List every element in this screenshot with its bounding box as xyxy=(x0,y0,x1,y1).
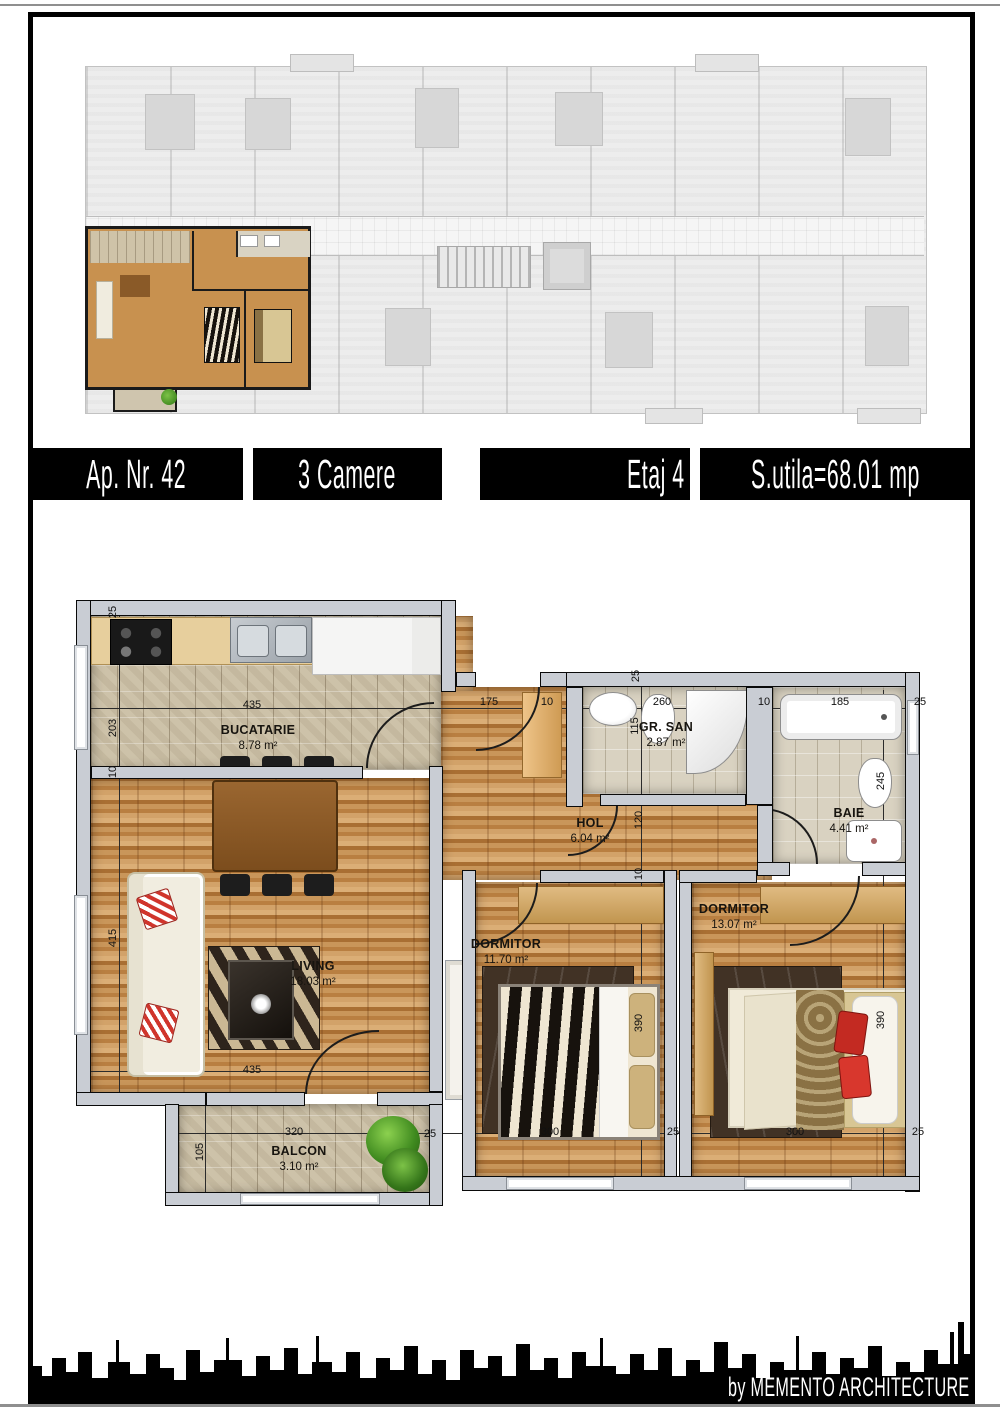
dimension-label: 25 xyxy=(424,1128,436,1140)
elevator xyxy=(543,242,591,290)
wall xyxy=(679,870,757,883)
credit-text: by MEMENTO ARCHITECTURE xyxy=(728,1372,970,1403)
room-count: 3 Camere xyxy=(299,451,397,498)
dimension-label: 390 xyxy=(875,1011,887,1029)
room-label-living: LIVING18.03 m² xyxy=(290,959,335,989)
mini-sofa xyxy=(96,281,113,339)
dimension-label: 260 xyxy=(653,696,671,708)
dining-table xyxy=(212,780,338,872)
mini-dining-table xyxy=(120,275,150,297)
window xyxy=(74,645,88,750)
room-hint xyxy=(605,312,653,368)
dimension-label: 203 xyxy=(107,719,119,737)
room-hint xyxy=(415,88,459,148)
window xyxy=(907,700,919,755)
wall xyxy=(429,1104,443,1206)
mini-fixture xyxy=(264,235,280,247)
room-hint xyxy=(845,98,891,156)
dimension-label: 10 xyxy=(758,696,770,708)
dimension-label: 25 xyxy=(914,696,926,708)
dimension-label: 245 xyxy=(875,772,887,790)
mini-bed-zebra xyxy=(204,307,240,363)
room-hint xyxy=(245,98,291,150)
wall xyxy=(76,600,456,616)
pillow xyxy=(833,1010,869,1056)
mini-bed-beige xyxy=(254,309,292,363)
dimension-label: 435 xyxy=(243,1064,261,1076)
chair xyxy=(262,874,292,896)
room-label-bucatarie: BUCATARIE8.78 m² xyxy=(221,723,295,753)
highlighted-apartment[interactable] xyxy=(85,226,311,390)
dimension-label: 105 xyxy=(194,1143,206,1161)
top-rule xyxy=(0,4,1000,6)
window xyxy=(744,1177,852,1190)
room-hint xyxy=(865,306,909,366)
mini-wall xyxy=(192,289,308,291)
window xyxy=(240,1193,380,1205)
balcony-bump xyxy=(290,54,354,72)
dimension-label: 25 xyxy=(630,670,642,682)
dimension-label: 120 xyxy=(633,811,645,829)
dimension-label: 320 xyxy=(285,1126,303,1138)
dormitor-2-wardrobe xyxy=(694,952,714,1116)
wall xyxy=(664,870,677,1190)
room-count-box: 3 Camere xyxy=(253,448,442,500)
coffee-table xyxy=(228,960,294,1040)
window xyxy=(506,1177,614,1190)
room-hint xyxy=(145,94,195,150)
kitchen-cabinet xyxy=(312,617,441,675)
apartment-number-box: Ap. Nr. 42 xyxy=(30,448,243,500)
dimension-label: 300 xyxy=(541,1126,559,1138)
chair xyxy=(304,874,334,896)
staircase xyxy=(437,246,531,288)
mini-wall xyxy=(244,289,246,387)
wall xyxy=(165,1104,179,1206)
dimension-label: 25 xyxy=(667,1126,679,1138)
room-label-dormitor-1: DORMITOR11.70 m² xyxy=(471,937,541,967)
mini-fixture xyxy=(240,235,258,247)
room-label-dormitor-2: DORMITOR13.07 m² xyxy=(699,902,769,932)
building-overview xyxy=(85,58,925,418)
wall xyxy=(566,687,583,807)
wall xyxy=(441,600,456,692)
room-label-balcon: BALCON3.10 m² xyxy=(271,1144,326,1174)
dormitor-2-bed xyxy=(728,988,906,1128)
kitchen-sink xyxy=(230,617,312,663)
room-label-hol: HOL6.04 m² xyxy=(571,816,610,846)
mini-plant xyxy=(161,389,177,405)
wall xyxy=(462,870,476,1190)
chair xyxy=(220,874,250,896)
bottom-rule xyxy=(0,1404,1000,1407)
stove xyxy=(110,619,172,665)
floor-label: Etaj 4 xyxy=(627,451,690,498)
mini-kitchen xyxy=(90,231,190,263)
balcony-bump xyxy=(645,408,703,424)
dimension-label: 10 xyxy=(541,696,553,708)
usable-area-box: S.utila=68.01 mp xyxy=(700,448,970,500)
dimension-label: 390 xyxy=(633,1014,645,1032)
dimension-label: 25 xyxy=(107,606,119,618)
wall xyxy=(206,1092,305,1106)
dimension-label: 435 xyxy=(243,699,261,711)
dimension-label: 300 xyxy=(786,1126,804,1138)
balcony-bump xyxy=(695,54,759,72)
wall xyxy=(679,870,692,1190)
dimension-label: 25 xyxy=(912,1126,924,1138)
dimension-label: 185 xyxy=(831,696,849,708)
wall xyxy=(540,870,664,883)
apartment-number: Ap. Nr. 42 xyxy=(86,451,186,498)
wall xyxy=(456,672,476,687)
window xyxy=(74,895,88,1035)
wall xyxy=(429,766,443,1092)
balcony-plant xyxy=(382,1148,428,1192)
balcony-bump xyxy=(857,408,921,424)
dormitor-1-bed xyxy=(498,984,660,1140)
dormitor-1-shelf xyxy=(518,886,664,924)
room-hint xyxy=(555,92,603,146)
dimension-label: 10 xyxy=(633,868,645,880)
room-label-baie: BAIE4.41 m² xyxy=(830,806,869,836)
dimension-label: 175 xyxy=(480,696,498,708)
room-label-gr-san: GR. SAN2.87 m² xyxy=(639,720,693,750)
usable-area: S.utila=68.01 mp xyxy=(751,451,920,498)
wall xyxy=(76,1092,206,1106)
wall xyxy=(600,794,746,806)
floor-box: Etaj 4 xyxy=(480,448,690,500)
wall xyxy=(757,862,790,876)
dimension-label: 10 xyxy=(107,766,119,778)
mini-wall xyxy=(192,231,194,291)
pillow xyxy=(838,1055,872,1100)
dimension-label: 415 xyxy=(107,929,119,947)
dim-line xyxy=(119,604,120,1096)
page: Ap. Nr. 42 3 Camere Etaj 4 S.utila=68.01… xyxy=(0,0,1000,1414)
wall xyxy=(91,766,363,779)
wall xyxy=(566,672,920,687)
pillow xyxy=(629,1065,655,1129)
room-hint xyxy=(385,308,431,366)
